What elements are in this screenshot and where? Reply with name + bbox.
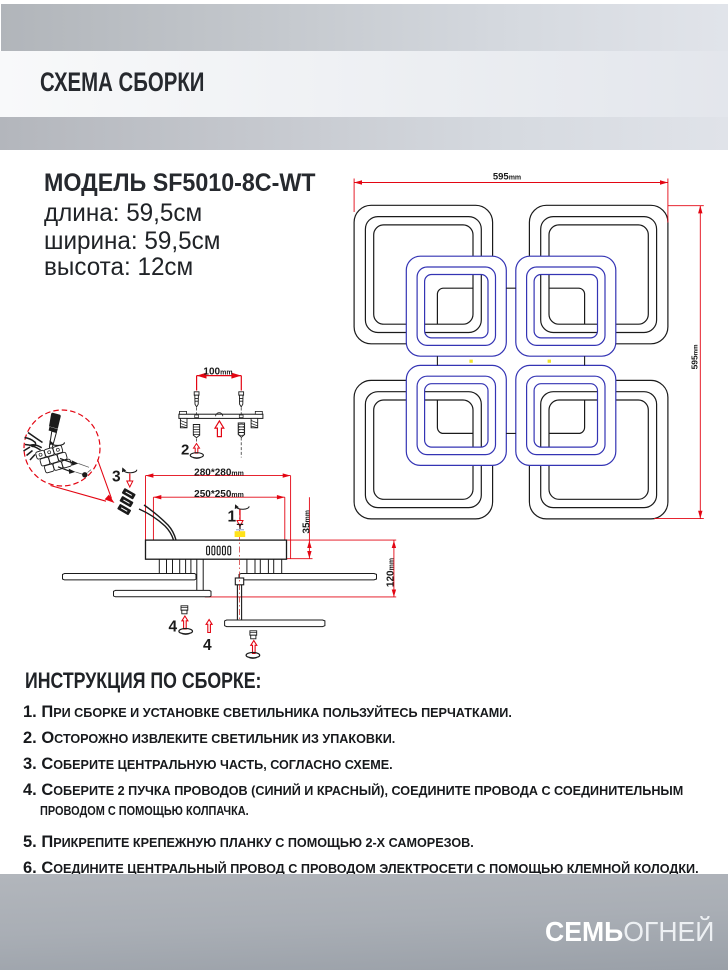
svg-text:280*280mm: 280*280mm	[194, 467, 244, 478]
svg-text:120mm: 120mm	[385, 558, 396, 587]
svg-text:2: 2	[181, 442, 189, 459]
svg-text:1: 1	[228, 509, 237, 526]
svg-text:250*250mm: 250*250mm	[194, 489, 244, 500]
svg-text:4: 4	[203, 637, 212, 654]
svg-text:3: 3	[112, 469, 121, 486]
svg-text:595mm: 595mm	[493, 171, 521, 182]
svg-text:35mm: 35mm	[301, 510, 312, 534]
svg-text:595mm: 595mm	[689, 345, 699, 370]
svg-text:100mm: 100mm	[203, 367, 232, 378]
svg-text:4: 4	[169, 619, 178, 636]
